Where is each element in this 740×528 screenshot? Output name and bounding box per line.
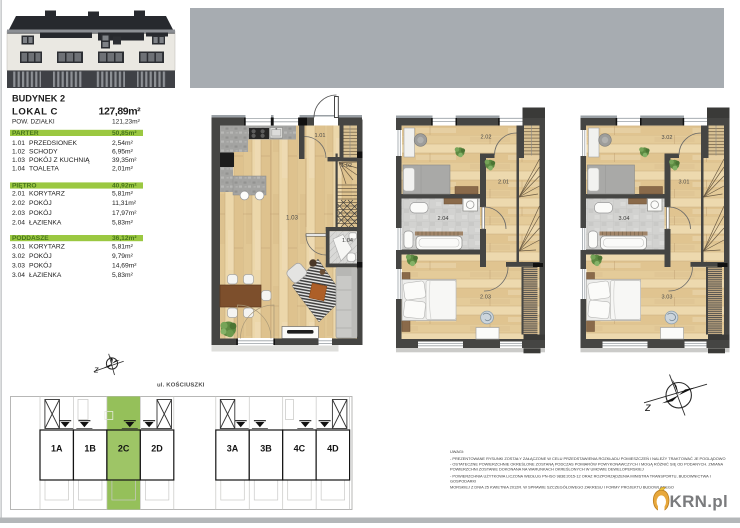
svg-text:- POWIERZCHNIA UŻYTKOWA LICZON: - POWIERZCHNIA UŻYTKOWA LICZONA WEDŁUG P… xyxy=(450,474,711,479)
svg-text:z: z xyxy=(644,400,651,414)
svg-text:2,54m²: 2,54m² xyxy=(112,140,134,147)
svg-text:14,69m²: 14,69m² xyxy=(112,263,137,270)
svg-text:- PREZENTOWANE RYSUNKI ZOSTAŁY: - PREZENTOWANE RYSUNKI ZOSTAŁY ZAŁĄCZONE… xyxy=(450,456,725,461)
svg-text:6,95m²: 6,95m² xyxy=(112,148,134,155)
svg-text:2.04: 2.04 xyxy=(438,216,449,222)
svg-text:4D: 4D xyxy=(327,444,339,454)
svg-text:PRZEDSIONEK: PRZEDSIONEK xyxy=(29,140,77,147)
svg-text:5,81m²: 5,81m² xyxy=(112,243,134,250)
svg-text:121,23m²: 121,23m² xyxy=(112,119,141,126)
svg-text:2.04: 2.04 xyxy=(12,219,25,226)
svg-text:36,12m²: 36,12m² xyxy=(112,235,137,242)
svg-text:1.01: 1.01 xyxy=(12,140,25,147)
svg-text:50,85m²: 50,85m² xyxy=(112,130,137,137)
svg-text:39,35m²: 39,35m² xyxy=(112,157,137,164)
svg-text:3.01: 3.01 xyxy=(12,243,25,250)
svg-text:2.01: 2.01 xyxy=(12,191,25,198)
svg-text:40,92m²: 40,92m² xyxy=(112,183,137,190)
svg-text:3.02: 3.02 xyxy=(662,135,673,141)
svg-text:POKÓJ: POKÓJ xyxy=(29,261,52,270)
svg-text:17,97m²: 17,97m² xyxy=(112,210,137,217)
svg-text:z: z xyxy=(93,365,99,376)
svg-text:5,81m²: 5,81m² xyxy=(112,191,134,198)
svg-text:KRN.pl: KRN.pl xyxy=(670,492,728,511)
svg-text:2.03: 2.03 xyxy=(12,210,25,217)
svg-text:ul. KOŚCIUSZKI: ul. KOŚCIUSZKI xyxy=(157,382,205,389)
svg-text:9,79m²: 9,79m² xyxy=(112,253,134,260)
svg-text:1.04: 1.04 xyxy=(12,166,25,173)
svg-text:3.03: 3.03 xyxy=(662,295,673,301)
svg-text:PODDASZE: PODDASZE xyxy=(12,235,49,242)
svg-text:PARTER: PARTER xyxy=(12,130,39,137)
svg-text:2C: 2C xyxy=(118,444,130,454)
svg-text:POKÓJ Z KUCHNIĄ: POKÓJ Z KUCHNIĄ xyxy=(29,155,90,164)
svg-text:3.02: 3.02 xyxy=(12,253,25,260)
svg-text:1.02: 1.02 xyxy=(12,148,25,155)
svg-text:POKÓJ: POKÓJ xyxy=(29,208,52,217)
svg-text:LOKAL C: LOKAL C xyxy=(12,107,58,118)
svg-text:3.04: 3.04 xyxy=(619,216,630,222)
svg-text:TOALETA: TOALETA xyxy=(29,166,59,173)
svg-text:2.03: 2.03 xyxy=(480,295,491,301)
svg-text:1.04: 1.04 xyxy=(342,238,353,244)
svg-text:2,01m²: 2,01m² xyxy=(112,166,134,173)
svg-text:KORYTARZ: KORYTARZ xyxy=(29,191,65,198)
svg-text:2.01: 2.01 xyxy=(498,180,509,186)
svg-text:11,31m²: 11,31m² xyxy=(112,200,137,207)
svg-text:1A: 1A xyxy=(51,444,63,454)
svg-text:1.03: 1.03 xyxy=(286,215,299,222)
svg-text:MORSKIEJ Z DNIA 25 KWIETNIA 20: MORSKIEJ Z DNIA 25 KWIETNIA 2012R. W SPR… xyxy=(450,485,674,490)
svg-text:GOSPODARKI: GOSPODARKI xyxy=(450,479,476,484)
svg-text:2D: 2D xyxy=(151,444,163,454)
svg-text:POKÓJ: POKÓJ xyxy=(29,251,52,260)
svg-text:127,89m²: 127,89m² xyxy=(99,106,142,118)
svg-text:3A: 3A xyxy=(227,444,239,454)
svg-text:PIĘTRO: PIĘTRO xyxy=(12,183,37,190)
svg-text:UWAGI:: UWAGI: xyxy=(450,449,464,454)
svg-text:3.01: 3.01 xyxy=(679,180,690,186)
svg-text:POWIERZCHNI ZOSTANIE DOKONANA: POWIERZCHNI ZOSTANIE DOKONANA NA WARUNKA… xyxy=(450,467,644,472)
svg-text:2.02: 2.02 xyxy=(12,200,25,207)
svg-text:4C: 4C xyxy=(294,444,306,454)
svg-text:SCHODY: SCHODY xyxy=(29,148,58,155)
svg-text:1.02: 1.02 xyxy=(341,163,352,169)
svg-text:1.03: 1.03 xyxy=(12,157,25,164)
svg-text:1.01: 1.01 xyxy=(315,133,326,139)
svg-text:5,83m²: 5,83m² xyxy=(112,219,134,226)
svg-text:BUDYNEK 2: BUDYNEK 2 xyxy=(12,94,65,104)
svg-text:3.04: 3.04 xyxy=(12,272,25,279)
svg-text:POW. DZIAŁKI: POW. DZIAŁKI xyxy=(12,119,55,126)
svg-text:ŁAZIENKA: ŁAZIENKA xyxy=(29,219,62,226)
svg-text:3B: 3B xyxy=(260,444,272,454)
svg-text:1B: 1B xyxy=(84,444,96,454)
svg-text:2.02: 2.02 xyxy=(481,135,492,141)
svg-text:KORYTARZ: KORYTARZ xyxy=(29,243,65,250)
svg-text:3.03: 3.03 xyxy=(12,263,25,270)
svg-text:5,83m²: 5,83m² xyxy=(112,272,134,279)
svg-text:ŁAZIENKA: ŁAZIENKA xyxy=(29,272,62,279)
svg-text:POKÓJ: POKÓJ xyxy=(29,198,52,207)
